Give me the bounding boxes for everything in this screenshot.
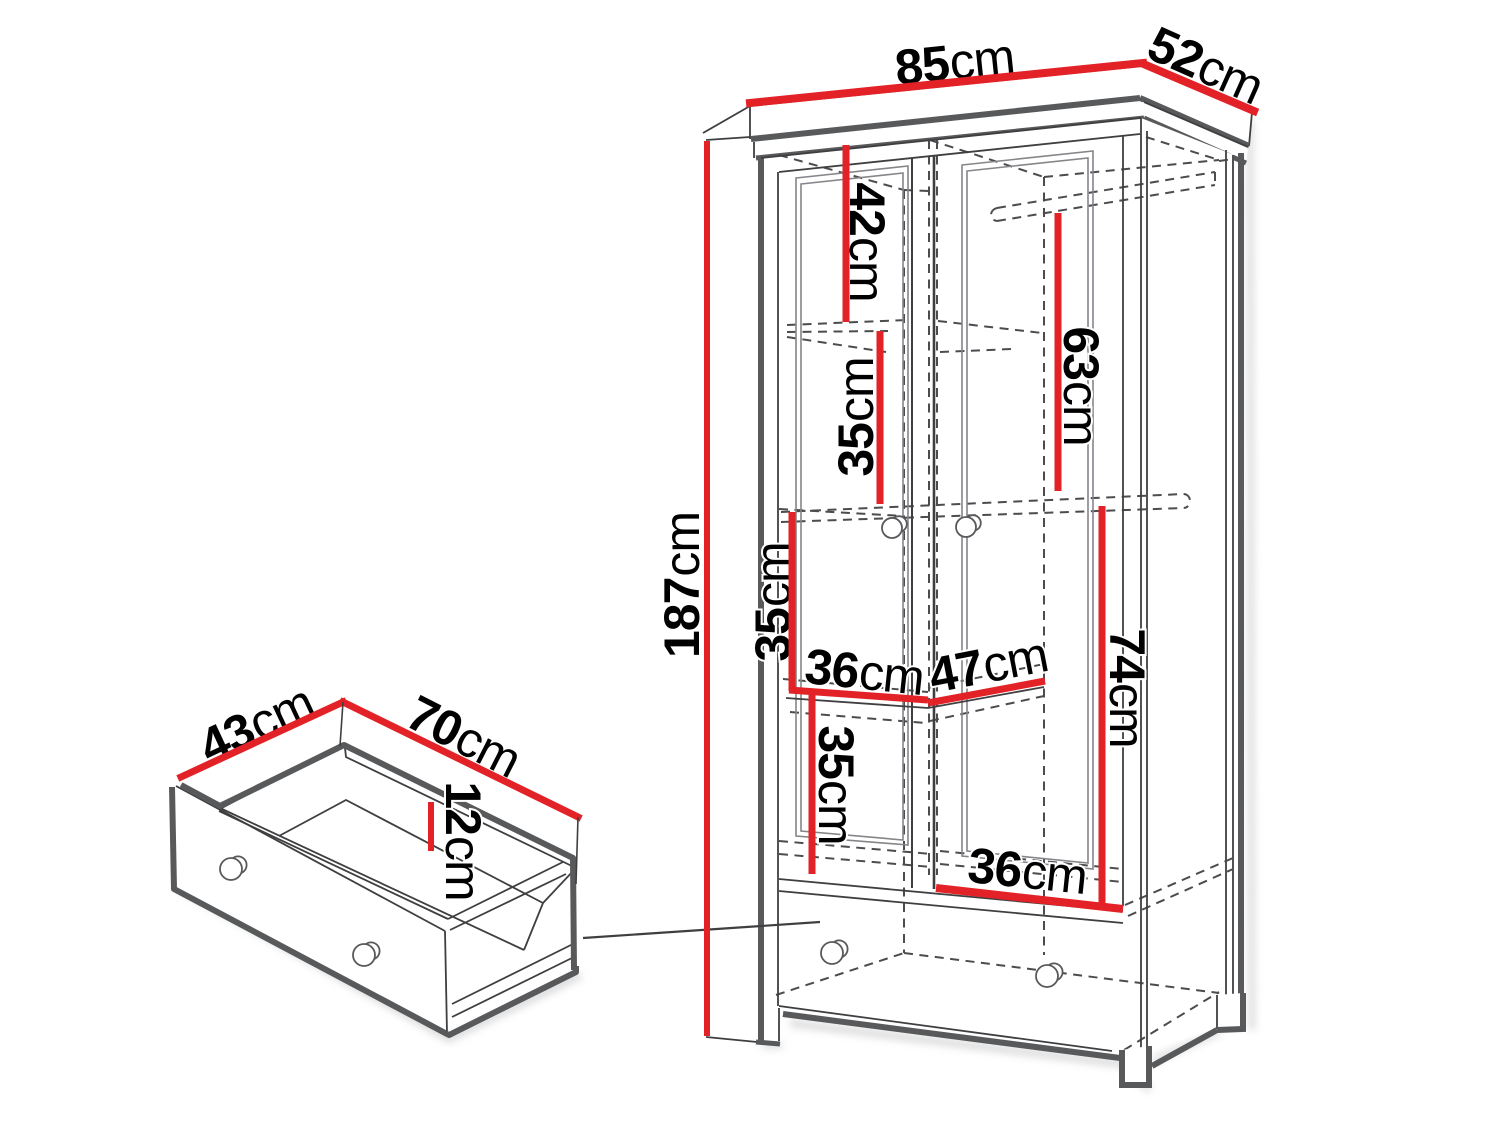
svg-text:187cm: 187cm bbox=[654, 512, 710, 658]
svg-text:74cm: 74cm bbox=[1099, 628, 1155, 747]
svg-text:35cm: 35cm bbox=[808, 725, 864, 844]
svg-text:35cm: 35cm bbox=[828, 357, 884, 476]
svg-text:12cm: 12cm bbox=[435, 781, 491, 900]
